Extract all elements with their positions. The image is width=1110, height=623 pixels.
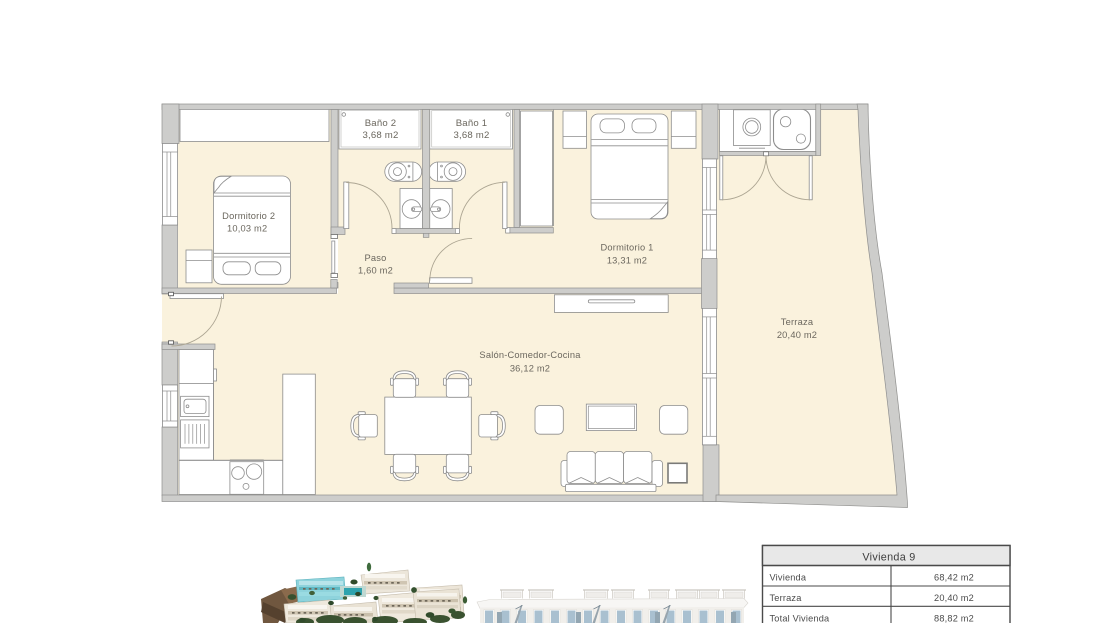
svg-text:Terraza: Terraza [781, 317, 814, 327]
svg-text:1,60 m2: 1,60 m2 [358, 266, 393, 276]
svg-text:88,82 m2: 88,82 m2 [934, 614, 974, 623]
svg-text:Vivienda 9: Vivienda 9 [862, 552, 915, 564]
svg-text:Terraza: Terraza [770, 593, 803, 603]
svg-text:Paso: Paso [365, 253, 387, 263]
svg-text:Vivienda: Vivienda [770, 573, 807, 583]
svg-text:13,31 m2: 13,31 m2 [607, 256, 647, 266]
svg-text:68,42 m2: 68,42 m2 [934, 573, 974, 583]
svg-text:Dormitorio 2: Dormitorio 2 [222, 211, 275, 221]
svg-text:Salón-Comedor-Cocina: Salón-Comedor-Cocina [479, 350, 581, 360]
svg-text:20,40 m2: 20,40 m2 [934, 593, 974, 603]
svg-text:Baño 2: Baño 2 [365, 118, 397, 129]
svg-text:3,68 m2: 3,68 m2 [362, 130, 398, 141]
svg-text:20,40 m2: 20,40 m2 [777, 330, 817, 340]
svg-text:36,12 m2: 36,12 m2 [510, 364, 550, 374]
svg-text:Dormitorio 1: Dormitorio 1 [600, 243, 653, 253]
svg-text:Total Vivienda: Total Vivienda [770, 614, 831, 623]
svg-text:Baño 1: Baño 1 [456, 118, 488, 129]
svg-text:10,03 m2: 10,03 m2 [227, 224, 267, 234]
svg-text:3,68 m2: 3,68 m2 [453, 130, 489, 141]
